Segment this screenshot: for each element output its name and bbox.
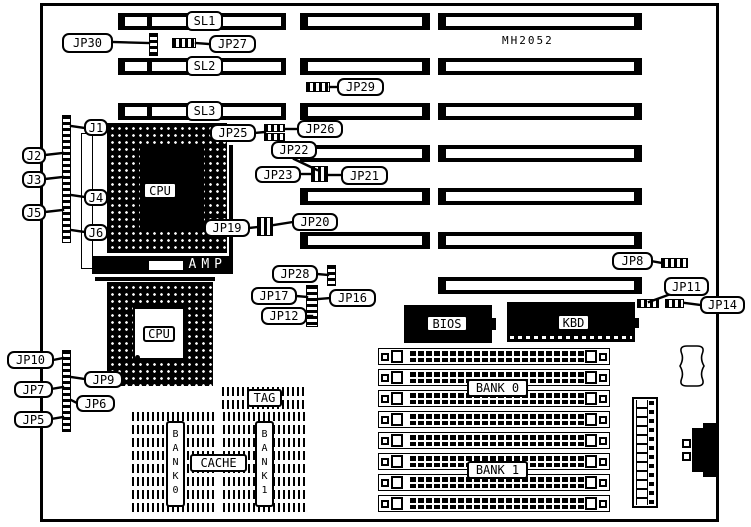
simm-clip: [381, 437, 389, 445]
callout-jp29: JP29: [337, 78, 384, 96]
isa-slot-bar-right: [438, 188, 642, 205]
isa-slot-bar-right: [438, 103, 642, 120]
callout-j5: J5: [22, 204, 46, 221]
slot-stripe: [308, 236, 422, 245]
tag-label: TAG: [247, 389, 282, 407]
callout-j1: J1: [84, 119, 108, 136]
kbd-chip-notch: [635, 318, 639, 328]
slot-label-sl3: SL3: [186, 101, 223, 121]
cache-bank0-label: BANK0: [166, 421, 185, 507]
slot-stripe: [446, 192, 634, 201]
callout-j2: J2: [22, 147, 46, 164]
isa-slot-bar-mid: [300, 103, 430, 120]
simm-clip: [381, 458, 389, 466]
jumper-jp29: [306, 82, 330, 92]
callout-jp26: JP26: [297, 120, 343, 138]
amp-white-mark: [149, 261, 183, 270]
simm-clip: [599, 479, 607, 487]
simm-socket-4: [378, 411, 610, 428]
power-connector-pins: [636, 400, 648, 505]
slot-stripe: [446, 149, 634, 158]
cpu-1-label: CPU: [143, 182, 177, 199]
simm-clip: [585, 455, 597, 468]
jumper-j-header-column: [62, 115, 71, 243]
slot-stripe: [308, 149, 422, 158]
simm-clip: [599, 500, 607, 508]
callout-jp7: JP7: [14, 381, 53, 398]
power-connector: [632, 397, 658, 508]
simm-bank0-label: BANK 0: [467, 379, 528, 397]
simm-clip: [391, 434, 403, 447]
simm-clip: [585, 350, 597, 363]
bios-label: BIOS: [426, 315, 468, 332]
bios-chip-notch: [492, 318, 496, 330]
slot-stripe: [446, 236, 634, 245]
isa-slot-bar-mid: [300, 188, 430, 205]
jumper-jp25-jp26-a: [264, 124, 285, 132]
callout-jp11: JP11: [664, 277, 709, 296]
cpu-2-label: CPU: [143, 326, 175, 342]
bios-chip: BIOS: [404, 305, 492, 343]
keyboard-controller-chip: KBD: [507, 302, 635, 342]
simm-clip: [585, 497, 597, 510]
board-model-text: MH2052: [502, 34, 554, 47]
simm-clip: [585, 371, 597, 384]
callout-jp28: JP28: [272, 265, 318, 283]
slot-stripe: [308, 17, 422, 26]
amp-label: AMP: [189, 257, 227, 272]
callout-jp6: JP6: [76, 395, 115, 412]
simm-clip: [599, 458, 607, 466]
simm-clip: [585, 392, 597, 405]
simm-pin-row: [408, 414, 588, 425]
isa-slot-bar-mid: [300, 58, 430, 75]
isa-slot-bar-right: [438, 232, 642, 249]
cache-bank1-label: BANK1: [255, 421, 274, 507]
isa-slot-bar-mid: [300, 145, 430, 162]
motherboard-diagram: MH2052 CPU AMP CPU BIOS KBD TAG BANK0 BA…: [0, 0, 751, 527]
callout-jp21: JP21: [341, 166, 388, 185]
slot-stripe: [308, 192, 422, 201]
callout-jp20: JP20: [292, 213, 338, 231]
simm-clip: [381, 353, 389, 361]
simm-clip: [391, 413, 403, 426]
callout-jp27: JP27: [209, 35, 256, 53]
slot-stripe: [308, 62, 422, 71]
cache-label: CACHE: [190, 454, 247, 472]
power-connector-pin-dots: [649, 401, 654, 504]
keyboard-din-connector-body: [703, 423, 719, 477]
jumper-jp23-jp21: [311, 166, 328, 182]
callout-j4: J4: [84, 189, 108, 206]
isa-slot-bar-right: [438, 277, 642, 294]
kbd-pin-row: [510, 336, 632, 339]
slot-stripe: [125, 62, 147, 71]
kbd-label: KBD: [557, 314, 590, 331]
slot-stripe: [125, 17, 147, 26]
simm-clip: [599, 437, 607, 445]
isa-slot-bar-right: [438, 145, 642, 162]
slot-label-sl1: SL1: [186, 11, 223, 31]
simm-clip: [599, 395, 607, 403]
callout-jp10: JP10: [7, 351, 54, 369]
din-mount-notch: [682, 452, 691, 461]
simm-pin-row: [408, 351, 588, 362]
callout-jp5: JP5: [14, 411, 53, 428]
isa-slot-bar-mid: [300, 13, 430, 30]
simm-pin-row: [408, 498, 588, 509]
slot-stripe: [446, 62, 634, 71]
jumper-jp8: [661, 258, 688, 268]
isa-slot-bar-right: [438, 13, 642, 30]
callout-jp23: JP23: [255, 166, 301, 183]
amp-regulator: AMP: [92, 256, 233, 274]
simm-pin-row: [408, 435, 588, 446]
slot-stripe: [308, 107, 422, 116]
simm-clip: [391, 392, 403, 405]
callout-jp8: JP8: [612, 252, 653, 270]
jumper-jp11: [637, 299, 659, 308]
pin1-marker-dot: [135, 355, 140, 360]
slot-label-sl2: SL2: [186, 56, 223, 76]
slot-stripe: [446, 281, 634, 290]
jumper-jp-header-column: [62, 350, 71, 432]
din-mount-notch: [682, 439, 691, 448]
crystal-outline: [677, 344, 707, 388]
jumper-jp28: [327, 265, 336, 286]
amp-regulator-lower-bar: [95, 277, 215, 281]
callout-jp16: JP16: [329, 289, 376, 307]
simm-clip: [381, 479, 389, 487]
callout-jp17: JP17: [251, 287, 297, 305]
simm-clip: [381, 374, 389, 382]
callout-j6: J6: [84, 224, 108, 241]
simm-clip: [381, 500, 389, 508]
jumper-jp19-jp20: [257, 217, 273, 236]
simm-clip: [391, 455, 403, 468]
callout-jp14: JP14: [700, 296, 745, 314]
simm-clip: [381, 395, 389, 403]
socket-side-strip: [229, 145, 233, 257]
simm-clip: [585, 413, 597, 426]
slot-stripe: [125, 107, 147, 116]
jumper-jp27: [172, 38, 196, 48]
callout-jp25: JP25: [210, 124, 256, 142]
jumper-jp17-jp16-jp12: [306, 285, 318, 327]
callout-jp12: JP12: [261, 307, 307, 325]
isa-slot-bar-mid: [300, 232, 430, 249]
simm-socket-5: [378, 432, 610, 449]
callout-jp30: JP30: [62, 33, 113, 53]
simm-clip: [599, 353, 607, 361]
callout-jp19: JP19: [204, 219, 250, 237]
simm-clip: [391, 371, 403, 384]
simm-clip: [391, 476, 403, 489]
callout-jp22: JP22: [271, 141, 317, 159]
simm-clip: [585, 434, 597, 447]
simm-clip: [585, 476, 597, 489]
jumper-jp30: [149, 33, 158, 56]
simm-clip: [599, 374, 607, 382]
simm-clip: [599, 416, 607, 424]
simm-bank1-label: BANK 1: [467, 461, 528, 479]
simm-socket-8: [378, 495, 610, 512]
simm-clip: [381, 416, 389, 424]
simm-clip: [391, 350, 403, 363]
slot-stripe: [446, 107, 634, 116]
slot-stripe: [446, 17, 634, 26]
jumper-jp14: [665, 299, 684, 308]
simm-clip: [391, 497, 403, 510]
isa-slot-bar-right: [438, 58, 642, 75]
callout-jp9: JP9: [84, 371, 123, 388]
jumper-jp25-jp26-b: [264, 133, 285, 141]
callout-j3: J3: [22, 171, 46, 188]
cpu-socket-2: CPU: [107, 282, 213, 386]
simm-socket-1: [378, 348, 610, 365]
